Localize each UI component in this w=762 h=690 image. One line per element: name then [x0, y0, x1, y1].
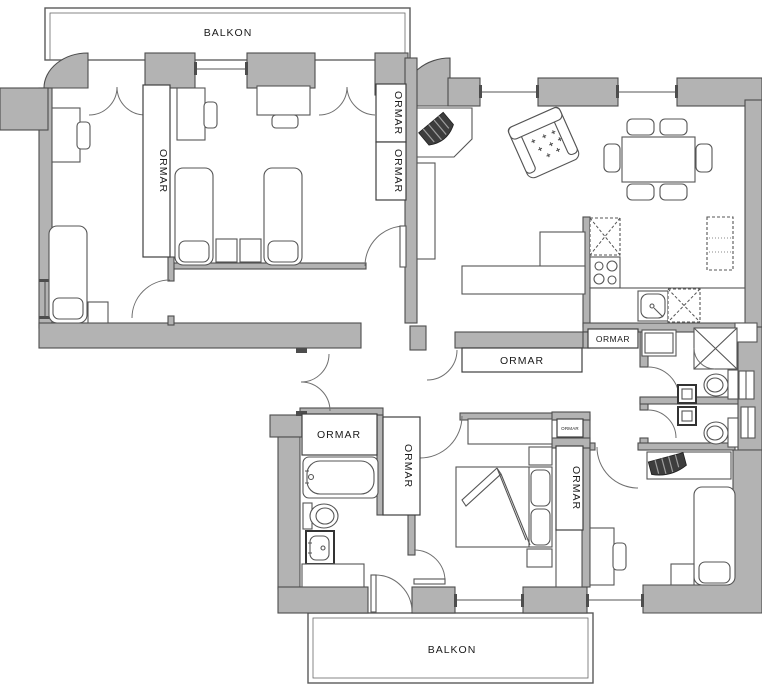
- wardrobe-label: ORMAR: [392, 91, 404, 135]
- wall-lower-bottom: [412, 587, 455, 613]
- window: [616, 85, 678, 98]
- pillow: [699, 562, 730, 583]
- bathroom-top: [642, 328, 754, 403]
- door-leaf: [400, 226, 406, 267]
- wardrobe-label: ORMAR: [500, 355, 544, 367]
- balcony-door-double: [89, 87, 145, 115]
- wall: [168, 316, 174, 325]
- bathtub: [303, 457, 378, 498]
- door-room-a: [132, 280, 170, 318]
- double-bed: [456, 467, 552, 547]
- nightstand: [529, 447, 552, 465]
- window: [479, 85, 539, 98]
- toilet: [303, 503, 338, 529]
- balcony-door-double: [319, 87, 375, 115]
- wall: [538, 78, 618, 106]
- door-jamb: [296, 348, 307, 353]
- desk: [177, 88, 205, 140]
- toilet: [704, 370, 738, 399]
- door-living-hall: [427, 350, 457, 380]
- dining-chair: [660, 119, 687, 135]
- shower: [694, 328, 737, 369]
- radiator: [739, 371, 754, 399]
- pillow: [268, 241, 298, 262]
- door-room-d: [597, 447, 638, 488]
- pillow: [179, 241, 209, 262]
- desk: [52, 108, 80, 162]
- door-bathroom-top: [648, 367, 679, 398]
- dining-set: [604, 119, 712, 200]
- wardrobe-label: ORMAR: [402, 444, 414, 488]
- bedroom-middle: [175, 86, 310, 265]
- window: [454, 594, 524, 607]
- sink: [678, 407, 696, 425]
- nightstand: [88, 302, 108, 323]
- dining-chair: [627, 184, 654, 200]
- shelf: [417, 163, 435, 259]
- door-room-b: [365, 226, 406, 267]
- wall: [145, 53, 195, 88]
- dining-chair: [660, 184, 687, 200]
- dining-chair: [604, 144, 620, 172]
- dresser: [556, 529, 582, 587]
- window: [194, 62, 248, 75]
- toilet: [704, 418, 738, 447]
- nightstand: [216, 239, 237, 262]
- radiator: [741, 407, 755, 438]
- bedroom-left: [49, 108, 108, 323]
- shelf: [468, 419, 552, 444]
- kitchen: [590, 217, 757, 342]
- sofa-section: [462, 266, 585, 294]
- wall-right: [745, 100, 762, 330]
- bedroom-right: [590, 452, 735, 585]
- door-leaf: [414, 579, 445, 584]
- wardrobe-label: ORMAR: [561, 426, 579, 431]
- floor-plan-drawing: ORMAR ORMAR ORMAR ORMAR ORMAR ORMAR ORMA…: [0, 0, 762, 690]
- counter: [302, 564, 364, 587]
- desk: [257, 86, 310, 115]
- sink: [306, 531, 334, 564]
- chair: [272, 115, 298, 128]
- dining-chair: [627, 119, 654, 135]
- desk: [590, 528, 614, 585]
- wall-hall-closet: [455, 332, 587, 348]
- dining-chair: [696, 144, 712, 172]
- wall-stub-west: [0, 88, 48, 130]
- wall: [247, 53, 315, 88]
- stove: [590, 257, 620, 288]
- washing-machine: [642, 330, 676, 356]
- wardrobe-label: ORMAR: [392, 149, 404, 193]
- wall: [410, 326, 426, 350]
- wall: [590, 443, 595, 450]
- pillow: [53, 298, 83, 319]
- pillow: [531, 509, 550, 545]
- door-leaf: [371, 575, 376, 612]
- chair: [613, 543, 626, 570]
- wardrobe-label: ORMAR: [596, 334, 630, 344]
- nightstand: [671, 564, 694, 585]
- door-master-north: [420, 416, 462, 458]
- wall: [448, 78, 480, 106]
- chair: [204, 102, 217, 128]
- wardrobe-label: ORMAR: [317, 429, 361, 441]
- nightstand: [240, 239, 261, 262]
- wall-lower-left: [278, 437, 300, 589]
- sofa-section: [540, 232, 585, 268]
- door-master-south: [414, 550, 445, 584]
- wall-room-d-north: [638, 443, 735, 450]
- wall-wing-divider: [405, 58, 417, 323]
- window: [586, 594, 644, 607]
- wardrobe-label: ORMAR: [570, 466, 582, 510]
- armchair: [507, 106, 581, 180]
- bathroom-main: [302, 457, 378, 587]
- wardrobe-label: ORMAR: [157, 149, 169, 193]
- floor-plan: ORMAR ORMAR ORMAR ORMAR ORMAR ORMAR ORMA…: [0, 0, 762, 690]
- fridge: [707, 217, 733, 270]
- balcony-door-hall: [371, 575, 412, 612]
- balcony-bottom-label: BALKON: [428, 644, 477, 656]
- wall: [270, 415, 302, 437]
- wall: [168, 257, 174, 281]
- cabinet: [735, 323, 757, 342]
- nightstand: [527, 549, 552, 567]
- dining-table: [622, 137, 695, 182]
- entrance-door-double: [301, 354, 330, 411]
- chair: [77, 122, 90, 149]
- wall-lower-bottom: [523, 587, 587, 613]
- kitchen-sink: [641, 294, 665, 318]
- balcony-top-label: BALKON: [204, 27, 253, 39]
- pillow: [531, 470, 550, 506]
- sink: [678, 385, 696, 403]
- wall-lower-bottom: [278, 587, 368, 613]
- wall-bottom-leftwing: [39, 323, 361, 348]
- door-bathroom-bottom: [648, 410, 676, 438]
